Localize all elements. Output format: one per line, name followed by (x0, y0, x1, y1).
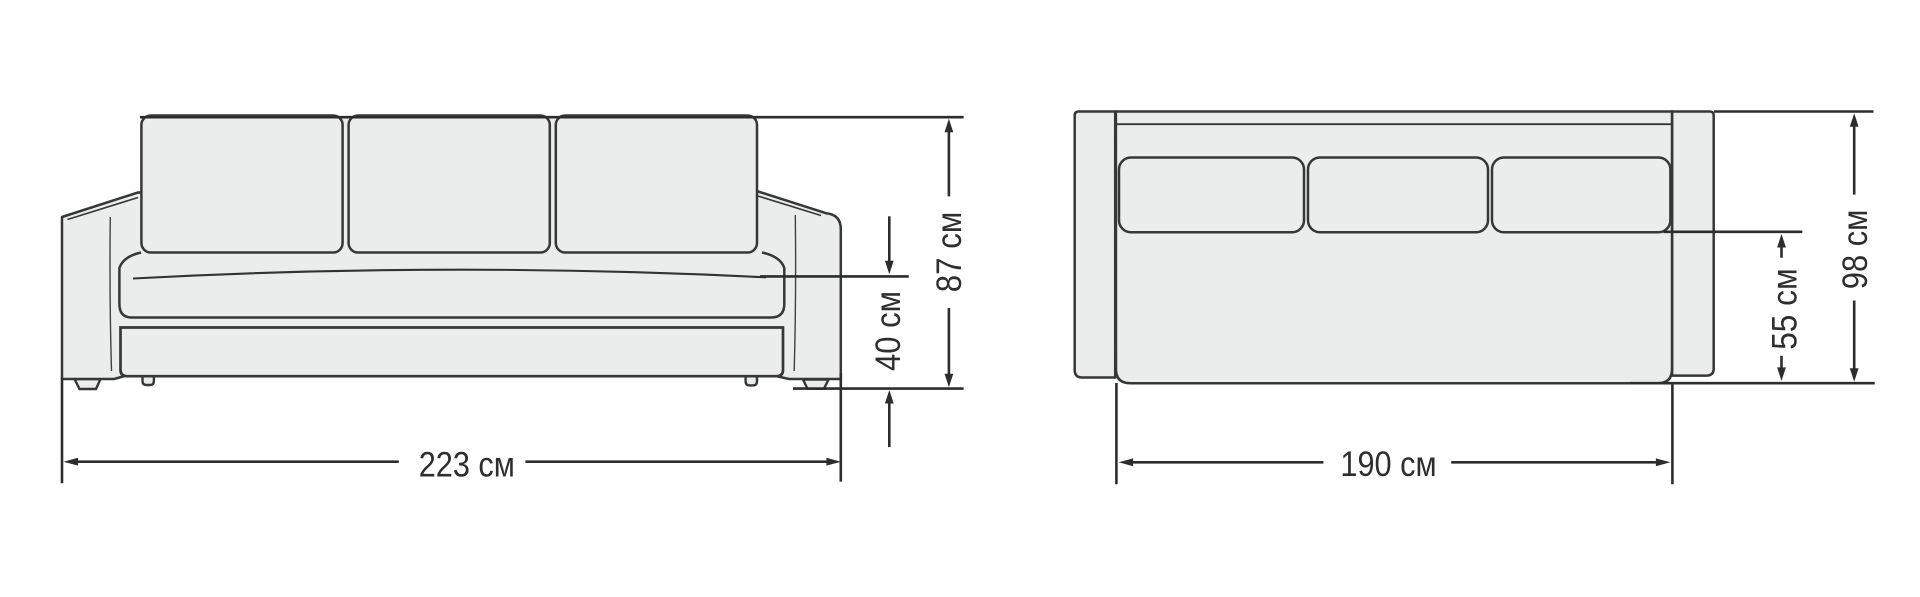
svg-text:223 см: 223 см (419, 445, 515, 485)
svg-text:55 см: 55 см (1764, 268, 1804, 350)
svg-text:190 см: 190 см (1340, 444, 1436, 484)
svg-text:87 см: 87 см (929, 212, 969, 293)
svg-text:98 см: 98 см (1835, 210, 1875, 290)
svg-text:40 см: 40 см (868, 291, 908, 371)
